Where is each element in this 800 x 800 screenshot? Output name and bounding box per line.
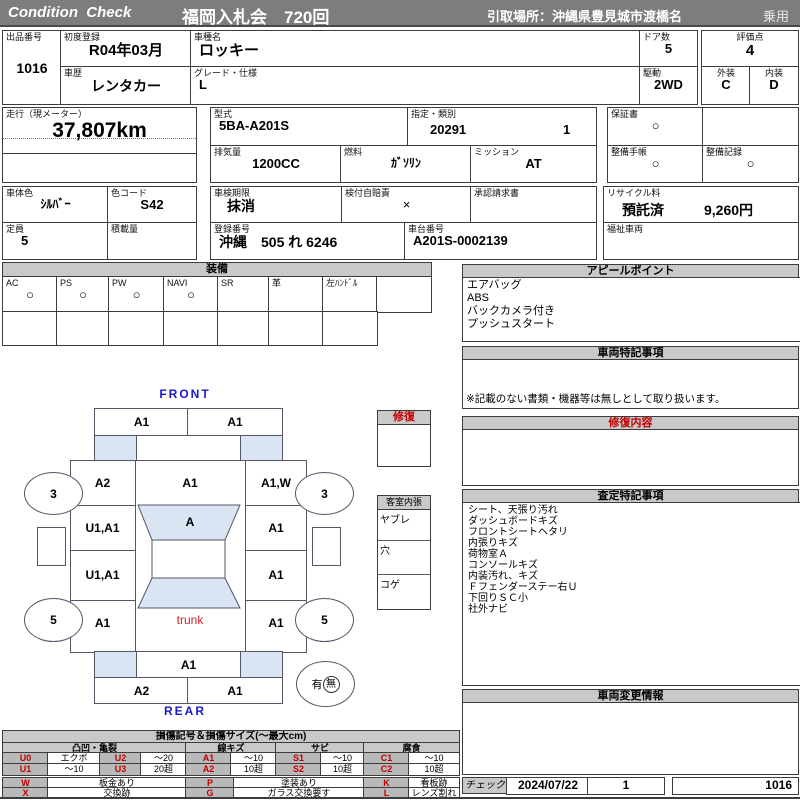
- mileage-divider-solid: [3, 153, 196, 154]
- assessment-item: シート、天張り汚れ: [468, 505, 800, 516]
- assessment-item: フロントシートヘタリ: [468, 527, 800, 538]
- maintenance-record-mark: ○: [703, 157, 798, 171]
- taillight-right: [240, 651, 283, 679]
- model-code: 5BA-A201S: [211, 119, 408, 134]
- repair-flag-box: 修復: [377, 410, 431, 467]
- check-label-cell: チェック: [462, 777, 508, 794]
- mileage-divider-dotted: [3, 138, 196, 139]
- diagram-front-label: FRONT: [120, 388, 250, 400]
- legend-desc: 10超: [230, 763, 277, 776]
- score: 4: [702, 42, 798, 59]
- front-door-left-label: U1,A1: [70, 505, 135, 550]
- warranty-mark: ○: [608, 119, 703, 133]
- equipment-blank-row-cell: [2, 311, 58, 346]
- color-code: S42: [108, 198, 196, 213]
- repair-flag-header: 修復: [378, 411, 430, 425]
- grade: L: [191, 78, 640, 93]
- taillight-left: [94, 651, 137, 679]
- auction-title: 福岡入札会 720回: [182, 3, 329, 28]
- equipment-cell-lhd: 左ﾊﾝﾄﾞﾙ: [322, 276, 378, 313]
- equipment-blank-row-cell: [108, 311, 165, 346]
- capacity: 5: [3, 234, 108, 249]
- insurance-cell: 検付自賠責 ×: [341, 186, 472, 224]
- equipment-blank-row-cell: [322, 311, 378, 346]
- equipment-blank-row-cell: [268, 311, 324, 346]
- assessment-item: 社外ナビ: [468, 604, 800, 615]
- vehicle-notes-box: ※記載のない書類・機器等は無しとして取り扱います。: [462, 359, 799, 409]
- equipment-cell-extra: [376, 276, 432, 313]
- rear-wheel-left: 5: [24, 598, 83, 642]
- designation-number: 20291: [430, 122, 466, 137]
- recycle-fee: 9,260円: [704, 200, 753, 220]
- registration-number: 沖縄 505 れ 6246: [211, 234, 405, 250]
- check-count-cell: 1: [587, 777, 665, 795]
- front-bumper-left: A1: [94, 408, 189, 436]
- recycle-fee-cell: リサイクル料 預託済 9,260円: [603, 186, 799, 224]
- assessment-item: Ｆフェンダーステー右Ｕ: [468, 582, 800, 593]
- registration-number-cell: 登録番号 沖縄 505 れ 6246: [210, 222, 406, 260]
- cabin-item-burn: コゲ: [378, 575, 430, 608]
- recycle-status: 預託済: [622, 200, 664, 220]
- approval-request-cell: 承認請求書: [470, 186, 597, 224]
- exterior-grade-cell: 外装 C: [701, 66, 751, 105]
- rear-door-right-label: A1: [245, 550, 307, 600]
- displacement-cell: 排気量 1200CC: [210, 145, 342, 183]
- interior-grade-cell: 内装 D: [749, 66, 799, 105]
- assessment-item: 荷物室Ａ: [468, 549, 800, 560]
- spare-present-label: 有: [312, 676, 323, 692]
- interior-grade: D: [750, 78, 798, 93]
- vehicle-notes-disclaimer: ※記載のない書類・機器等は無しとして取り扱います。: [466, 391, 725, 406]
- warranty-blank-cell: [702, 107, 799, 147]
- maintenance-record-cell: 整備記録 ○: [702, 145, 799, 183]
- side-sill-right: [312, 527, 341, 566]
- doors-cell: ドア数 5: [639, 30, 698, 69]
- front-wheel-right: 3: [295, 472, 354, 515]
- doors: 5: [640, 42, 697, 57]
- legend-code: U3: [99, 763, 142, 776]
- equipment-blank-row-cell: [217, 311, 270, 346]
- appeal-item: エアバッグ: [467, 279, 800, 292]
- rear-wheel-right: 5: [295, 598, 354, 642]
- equipment-blank-row-cell: [163, 311, 219, 346]
- equipment-mark: ○: [57, 288, 109, 302]
- inspection-status: 抹消: [211, 198, 342, 214]
- drive-cell: 駆動 2WD: [639, 66, 698, 105]
- rear-bumper-right: A1: [187, 677, 283, 704]
- welfare-vehicle-cell: 福祉車両: [603, 222, 799, 260]
- legend-code: S2: [275, 763, 322, 776]
- legend-desc: 10超: [408, 763, 460, 776]
- appeal-points-box: エアバッグ ABS バックカメラ付き プッシュスタート: [462, 277, 800, 342]
- class-number: 1: [563, 122, 570, 137]
- equipment-cell-sr: SR: [217, 276, 270, 313]
- lot-number: 1016: [3, 60, 61, 76]
- pickup-location: 引取場所：沖縄県豊見城市渡橋名: [487, 6, 682, 25]
- diagram-rear-label: REAR: [120, 705, 250, 717]
- car-history-cell: 車歴 レンタカー: [60, 66, 192, 105]
- mileage-cell: 走行（現メーター） 37,807km: [2, 107, 197, 183]
- assessment-item: 下回りＳＣ小: [468, 593, 800, 604]
- check-date-cell: 2024/07/22: [506, 777, 590, 795]
- assessment-item: コンソールキズ: [468, 560, 800, 571]
- cabin-lining-header: 客室内張: [378, 496, 430, 510]
- equipment-mark: ○: [164, 288, 218, 302]
- maintenance-book-cell: 整備手帳 ○: [607, 145, 704, 183]
- rear-door-left-label: U1,A1: [70, 550, 135, 600]
- equipment-cell-ps: PS ○: [56, 276, 110, 313]
- check-lot-cell: 1016: [672, 777, 799, 795]
- cabin-item-hole: 穴: [378, 541, 430, 575]
- first-registration: R04年03月: [61, 42, 191, 59]
- color-code-cell: 色コード S42: [107, 186, 197, 224]
- grade-cell: グレード・仕様 L: [190, 66, 641, 105]
- chassis-number-cell: 車台番号 A201S-0002139: [404, 222, 597, 260]
- maintenance-book-mark: ○: [608, 157, 703, 171]
- front-door-right-label: A1: [245, 505, 307, 550]
- legend-code: C2: [363, 763, 410, 776]
- fuel-cell: 燃料 ｶﾞｿﾘﾝ: [340, 145, 472, 183]
- mileage: 37,807km: [3, 119, 196, 143]
- side-sill-left: [37, 527, 66, 566]
- chassis-number: A201S-0002139: [405, 234, 596, 249]
- brand-logo: Condition Check: [8, 4, 131, 21]
- assessment-item: ダッシュボードキズ: [468, 516, 800, 527]
- legend-code: U1: [2, 763, 49, 776]
- equipment-cell-leather: 革: [268, 276, 324, 313]
- bottom-rule: [0, 797, 800, 799]
- equipment-header: 装備: [2, 262, 432, 277]
- score-cell: 評価点 4: [701, 30, 799, 69]
- fuel-type: ｶﾞｿﾘﾝ: [341, 157, 471, 171]
- model-name: ロッキー: [191, 42, 640, 59]
- appeal-item: プッシュスタート: [467, 318, 800, 331]
- check-date: 2024/07/22: [507, 778, 589, 793]
- legend-desc: 10超: [320, 763, 365, 776]
- inspection-cell: 車検期限 抹消: [210, 186, 343, 224]
- assessment-item: 内装汚れ、キズ: [468, 571, 800, 582]
- spare-tire-indicator: 有 無: [296, 661, 355, 707]
- car-history: レンタカー: [61, 78, 191, 94]
- vehicle-changes-box: [462, 702, 799, 775]
- equipment-mark: ○: [109, 288, 164, 302]
- insurance-mark: ×: [342, 198, 471, 212]
- equipment-cell-ac: AC ○: [2, 276, 58, 313]
- load-capacity-cell: 積載量: [107, 222, 197, 260]
- legend-code: A2: [185, 763, 232, 776]
- legend-desc: ～10: [47, 763, 101, 776]
- check-count: 1: [588, 778, 664, 793]
- first-registration-cell: 初度登録 R04年03月: [60, 30, 192, 69]
- rear-bumper-left: A2: [94, 677, 189, 704]
- transmission: AT: [471, 157, 596, 172]
- hood-center-label: A1: [135, 460, 245, 505]
- model-name-cell: 車種名 ロッキー: [190, 30, 641, 69]
- drive-type: 2WD: [640, 78, 697, 93]
- front-bumper-right: A1: [187, 408, 283, 436]
- body-color: ｼﾙﾊﾞｰ: [3, 198, 108, 212]
- headlight-left: [94, 435, 137, 461]
- headlight-right: [240, 435, 283, 461]
- capacity-cell: 定員 5: [2, 222, 109, 260]
- assessment-notes-box: シート、天張り汚れ ダッシュボードキズ フロントシートヘタリ 内張りキズ 荷物室…: [462, 502, 800, 686]
- assessment-item: 内張りキズ: [468, 538, 800, 549]
- cabin-lining-box: 客室内張 ヤブレ 穴 コゲ: [377, 495, 431, 610]
- spare-absent-circled: 無: [323, 676, 340, 693]
- vehicle-category: 乗用: [763, 6, 789, 25]
- displacement: 1200CC: [211, 157, 341, 172]
- transmission-cell: ミッション AT: [470, 145, 597, 183]
- windshield-label: A: [135, 508, 245, 536]
- class-designation-cell: 指定・類別 20291 1: [407, 107, 597, 147]
- equipment-blank-row-cell: [56, 311, 110, 346]
- legend-desc: 20超: [140, 763, 187, 776]
- lot-number-cell: 出品番号 1016: [2, 30, 62, 105]
- equipment-mark: ○: [3, 288, 57, 302]
- model-code-cell: 型式 5BA-A201S: [210, 107, 409, 147]
- appeal-item: ABS: [467, 292, 800, 305]
- appeal-item: バックカメラ付き: [467, 305, 800, 318]
- cabin-item-tear: ヤブレ: [378, 510, 430, 541]
- check-lot-number: 1016: [673, 778, 798, 793]
- repair-details-box: [462, 429, 799, 486]
- equipment-cell-pw: PW ○: [108, 276, 165, 313]
- warranty-cell: 保証書 ○: [607, 107, 704, 147]
- trunk-label: trunk: [135, 604, 245, 636]
- exterior-grade: C: [702, 78, 750, 93]
- front-wheel-left: 3: [24, 472, 83, 515]
- equipment-cell-navi: NAVI ○: [163, 276, 219, 313]
- condition-check-sheet: Condition Check 福岡入札会 720回 引取場所：沖縄県豊見城市渡…: [0, 0, 800, 800]
- title-bar: Condition Check 福岡入札会 720回 引取場所：沖縄県豊見城市渡…: [0, 0, 800, 27]
- body-color-cell: 車体色 ｼﾙﾊﾞｰ: [2, 186, 109, 224]
